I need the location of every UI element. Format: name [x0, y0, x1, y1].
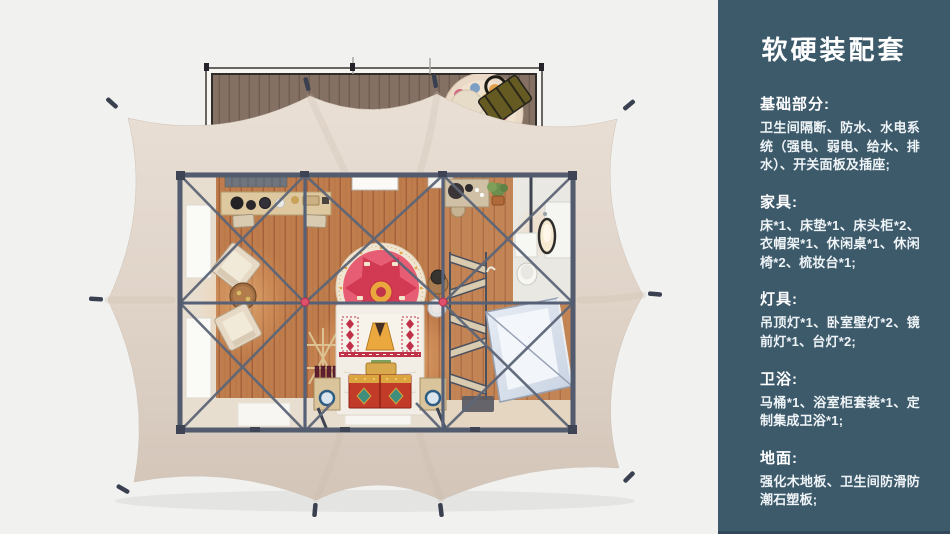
mirror-tray	[448, 183, 464, 199]
bath-cabinet	[515, 233, 537, 257]
shower-mat	[462, 396, 494, 412]
frame-joint	[439, 298, 447, 306]
page: 软硬装配套 基础部分: 卫生间隔断、防水、水电系统（强电、弱电、给水、排水）、开…	[0, 0, 950, 534]
spec-section-furniture: 家具: 床*1、床垫*1、床头柜*2、衣帽架*1、休闲桌*1、休闲椅*2、梳妆台…	[760, 191, 920, 273]
nightstand-left	[314, 378, 340, 410]
spec-section-lighting: 灯具: 吊顶灯*1、卧室壁灯*2、镜前灯*1、台灯*2;	[760, 288, 920, 351]
deck-clamp	[350, 63, 355, 71]
section-body: 强化木地板、卫生间防滑防潮石塑板;	[760, 473, 920, 510]
hat	[246, 200, 256, 210]
spec-section-flooring: 地面: 强化木地板、卫生间防滑防潮石塑板;	[760, 447, 920, 510]
deck-clamp	[539, 63, 544, 71]
panel-title: 软硬装配套	[748, 30, 920, 67]
section-heading: 地面:	[760, 447, 920, 468]
canopy-shadow	[115, 490, 635, 512]
section-body: 马桶*1、浴室柜套装*1、定制集成卫浴*1;	[760, 394, 920, 431]
teapot	[291, 196, 299, 204]
kettle	[260, 198, 271, 209]
wall-vent	[225, 176, 287, 187]
floorplan-rendering	[0, 0, 718, 534]
chair	[305, 214, 327, 227]
spec-section-bathroom: 卫浴: 马桶*1、浴室柜套装*1、定制集成卫浴*1;	[760, 368, 920, 431]
ceiling-panel	[352, 177, 398, 190]
frame-joint	[301, 298, 309, 306]
chair	[233, 214, 255, 227]
wall-window-mat	[186, 205, 211, 278]
hat	[231, 197, 244, 210]
section-heading: 卫浴:	[760, 368, 920, 389]
section-body: 吊顶灯*1、卧室壁灯*2、镜前灯*1、台灯*2;	[760, 314, 920, 351]
section-body: 卫生间隔断、防水、水电系统（强电、弱电、给水、排水）、开关面板及插座;	[760, 119, 920, 175]
section-body: 床*1、床垫*1、床头柜*2、衣帽架*1、休闲桌*1、休闲椅*2、梳妆台*1;	[760, 217, 920, 273]
section-heading: 基础部分:	[760, 93, 920, 114]
section-heading: 灯具:	[760, 288, 920, 309]
spec-section-basics: 基础部分: 卫生间隔断、防水、水电系统（强电、弱电、给水、排水）、开关面板及插座…	[760, 93, 920, 175]
spec-panel: 软硬装配套 基础部分: 卫生间隔断、防水、水电系统（强电、弱电、给水、排水）、开…	[718, 0, 950, 534]
deck-clamp	[204, 63, 209, 71]
red-chest	[349, 375, 411, 408]
section-heading: 家具:	[760, 191, 920, 212]
